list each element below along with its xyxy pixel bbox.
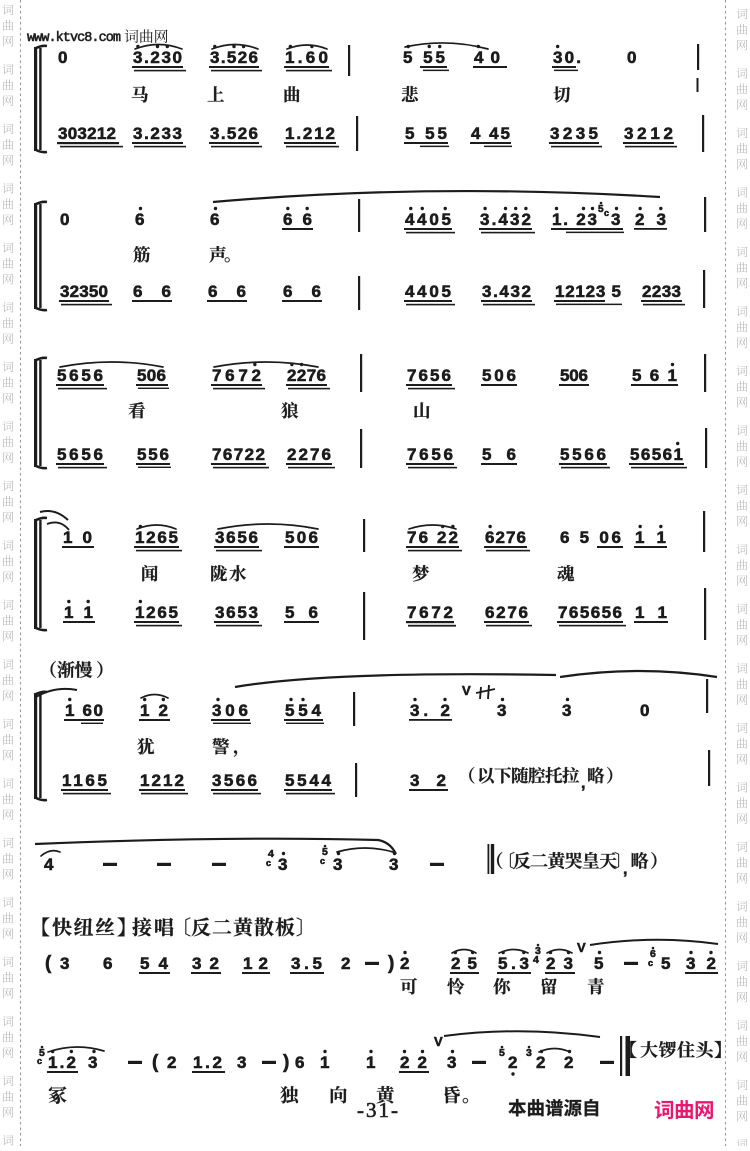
svg-text:4 45: 4 45	[471, 124, 510, 143]
svg-text:4: 4	[533, 954, 539, 966]
svg-text:0: 0	[627, 48, 636, 67]
svg-text:3653: 3653	[215, 603, 258, 622]
svg-text:3: 3	[526, 1047, 532, 1059]
svg-text:3.432: 3.432	[480, 210, 531, 229]
svg-text:4 0: 4 0	[474, 48, 500, 67]
svg-text:3 2: 3 2	[192, 954, 219, 973]
svg-text:6 6: 6 6	[133, 282, 171, 301]
svg-text:1.212: 1.212	[285, 124, 335, 143]
svg-text:1 2: 1 2	[140, 701, 168, 720]
svg-text:c: c	[266, 858, 271, 868]
svg-text:6 6: 6 6	[283, 210, 312, 229]
svg-text:1 1: 1 1	[635, 603, 667, 622]
svg-text:2233: 2233	[642, 282, 681, 301]
svg-text:2: 2	[400, 954, 409, 973]
svg-text:6: 6	[295, 1053, 304, 1072]
svg-text:56561: 56561	[630, 445, 683, 464]
svg-text:76722: 76722	[212, 445, 265, 464]
svg-text:3: 3	[278, 855, 287, 874]
svg-text:5.3: 5.3	[498, 954, 529, 973]
svg-text:6: 6	[210, 210, 219, 229]
svg-text:5 6: 5 6	[285, 603, 318, 622]
svg-text:(: (	[152, 1052, 159, 1073]
svg-text:3: 3	[497, 701, 506, 720]
svg-text:3: 3	[389, 855, 398, 874]
svg-text:2: 2	[508, 1053, 517, 1072]
svg-text:5: 5	[594, 954, 603, 973]
svg-text:2: 2	[167, 1053, 176, 1072]
svg-text:306: 306	[212, 701, 248, 720]
svg-text:1 2: 1 2	[243, 954, 268, 973]
svg-text:2 5: 2 5	[451, 954, 477, 973]
svg-text:,: ,	[581, 775, 585, 792]
svg-text:3.526: 3.526	[210, 124, 258, 143]
svg-text:3.5: 3.5	[291, 954, 322, 973]
svg-text:506: 506	[285, 528, 318, 547]
svg-text:3.526: 3.526	[210, 48, 258, 67]
svg-text:3: 3	[562, 701, 571, 720]
svg-text:3.230: 3.230	[133, 48, 182, 67]
svg-text:2: 2	[564, 1053, 573, 1072]
svg-text:c: c	[604, 208, 609, 218]
svg-text:c: c	[320, 856, 325, 866]
svg-text:V: V	[434, 1034, 443, 1049]
svg-text:6: 6	[135, 210, 144, 229]
svg-text:1165: 1165	[62, 771, 107, 790]
svg-text:6276: 6276	[485, 603, 528, 622]
svg-text:1 60: 1 60	[65, 701, 103, 720]
svg-text:1: 1	[366, 1053, 375, 1072]
svg-text:3: 3	[60, 954, 69, 973]
svg-text:3: 3	[333, 855, 342, 874]
svg-text:554: 554	[285, 701, 322, 720]
svg-text:6: 6	[103, 954, 112, 973]
svg-text:506: 506	[560, 366, 588, 385]
svg-text:5 55: 5 55	[403, 48, 445, 67]
svg-text:2: 2	[536, 1053, 545, 1072]
svg-text:32350: 32350	[60, 282, 108, 301]
svg-text:3.432: 3.432	[482, 282, 531, 301]
svg-text:0: 0	[640, 701, 649, 720]
svg-text:2276: 2276	[287, 366, 326, 385]
svg-text:1: 1	[320, 1053, 329, 1072]
svg-text:1 0: 1 0	[63, 528, 92, 547]
svg-text:V: V	[462, 683, 471, 698]
svg-text:www.ktvc8.com: www.ktvc8.com	[27, 31, 121, 46]
svg-text:1.60: 1.60	[285, 48, 328, 67]
svg-text:3: 3	[237, 1053, 246, 1072]
svg-text:303212: 303212	[58, 124, 116, 143]
svg-text:506: 506	[482, 366, 516, 385]
svg-text:V: V	[577, 940, 586, 955]
svg-text:0: 0	[60, 210, 69, 229]
svg-text:2 3: 2 3	[635, 210, 666, 229]
svg-text:4: 4	[44, 855, 54, 874]
svg-text:6 6: 6 6	[208, 282, 246, 301]
svg-text:3 2: 3 2	[686, 954, 716, 973]
svg-text:1 1: 1 1	[635, 528, 666, 547]
svg-text:556: 556	[137, 445, 169, 464]
svg-text:): )	[283, 1052, 289, 1073]
svg-text:5: 5	[499, 1047, 505, 1059]
svg-text:1 1: 1 1	[64, 603, 93, 622]
svg-text:5 4: 5 4	[140, 954, 169, 973]
svg-text:30.: 30.	[553, 48, 581, 67]
svg-text:6276: 6276	[485, 528, 526, 547]
svg-text:5 55: 5 55	[405, 124, 447, 143]
svg-text:2 3: 2 3	[546, 954, 573, 973]
svg-text:3: 3	[611, 210, 620, 229]
svg-text:0: 0	[58, 48, 67, 67]
svg-text:,: ,	[623, 861, 627, 878]
svg-text:6 6: 6 6	[283, 282, 321, 301]
svg-text:3.233: 3.233	[133, 124, 182, 143]
svg-text:3: 3	[447, 1053, 456, 1072]
svg-text:76 22: 76 22	[407, 528, 458, 547]
svg-text:1.2: 1.2	[48, 1053, 76, 1072]
svg-text:2: 2	[341, 954, 350, 973]
svg-text:(: (	[45, 953, 52, 974]
svg-text:506: 506	[137, 366, 166, 385]
svg-text:c: c	[37, 1056, 42, 1066]
svg-text:c: c	[648, 958, 653, 968]
svg-text:3 2: 3 2	[410, 771, 446, 790]
svg-text:1265: 1265	[135, 603, 178, 622]
svg-text:12123 5: 12123 5	[555, 282, 621, 301]
svg-text:): )	[388, 953, 394, 974]
svg-text:1.2: 1.2	[193, 1053, 222, 1072]
svg-text:5 6: 5 6	[482, 445, 516, 464]
svg-text:1265: 1265	[135, 528, 178, 547]
svg-text:3656: 3656	[215, 528, 258, 547]
svg-text:5: 5	[661, 954, 670, 973]
svg-text:3: 3	[88, 1053, 97, 1072]
svg-text:5 6 1: 5 6 1	[632, 366, 677, 385]
svg-text:2 2: 2 2	[400, 1053, 427, 1072]
